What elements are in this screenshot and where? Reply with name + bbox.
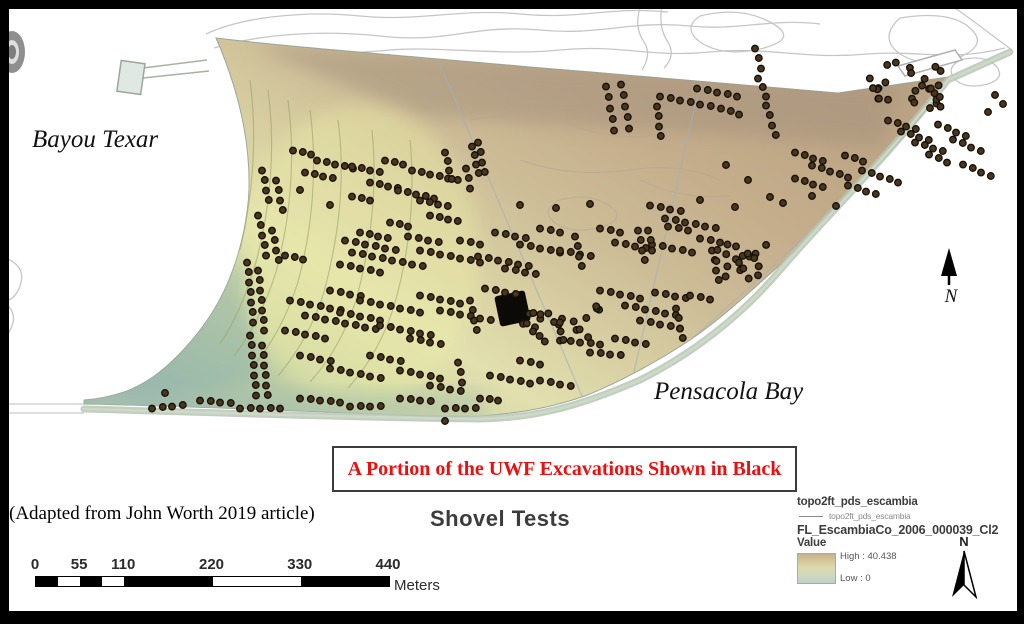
shovel-test-dot — [359, 165, 366, 172]
shovel-test-dot — [367, 231, 374, 238]
shovel-test-dot — [257, 405, 264, 412]
shovel-test-dot — [732, 204, 739, 211]
shovel-test-dot — [466, 175, 473, 182]
shovel-test-dot — [417, 309, 424, 316]
shovel-test-dot — [467, 297, 474, 304]
shovel-test-dot — [263, 372, 270, 379]
shovel-test-dot — [908, 131, 915, 138]
shovel-test-dot — [697, 235, 704, 242]
shovel-test-dot — [357, 229, 364, 236]
shovel-test-dot — [682, 219, 689, 226]
shovel-test-dot — [740, 265, 747, 272]
shovel-test-dot — [478, 149, 485, 156]
shovel-test-dot — [302, 331, 309, 338]
shovel-test-dot — [693, 221, 700, 228]
shovel-test-dot — [418, 337, 425, 344]
shovel-test-dot — [935, 121, 942, 128]
shovel-test-dot — [643, 341, 650, 348]
shovel-test-dot — [935, 82, 942, 89]
shovel-test-dot — [437, 173, 444, 180]
shovel-test-dot — [610, 116, 617, 123]
shovel-test-dot — [416, 235, 423, 242]
shovel-test-dot — [763, 93, 770, 100]
shovel-test-dot — [300, 149, 307, 156]
shovel-test-dot — [767, 112, 774, 119]
shovel-test-dot — [342, 237, 349, 244]
shovel-test-dot — [262, 177, 269, 184]
shovel-test-dot — [673, 217, 680, 224]
shovel-test-dot — [263, 187, 270, 194]
scale-unit-label: Meters — [394, 577, 440, 594]
shovel-test-dot — [884, 62, 891, 69]
shovel-test-dot — [290, 147, 297, 154]
shovel-test-dot — [668, 95, 675, 102]
shovel-test-dot — [417, 247, 424, 254]
shovel-test-dot — [545, 310, 552, 317]
shovel-test-dot — [377, 181, 384, 188]
shovel-test-dot — [438, 384, 445, 391]
shovel-test-dot — [724, 241, 731, 248]
shovel-test-dot — [728, 108, 735, 115]
shovel-test-dot — [745, 275, 752, 282]
scale-tick-label: 55 — [71, 556, 88, 573]
shovel-test-dot — [435, 201, 442, 208]
shovel-test-dot — [723, 251, 730, 258]
shovel-test-dot — [522, 269, 529, 276]
shovel-test-dot — [860, 158, 867, 165]
shovel-test-dot — [755, 263, 762, 270]
shovel-test-dot — [263, 252, 270, 259]
shovel-test-dot — [307, 301, 314, 308]
shovel-test-dot — [378, 354, 385, 361]
shovel-test-dot — [713, 267, 720, 274]
scale-tick-label: 220 — [199, 556, 224, 573]
shovel-test-dot — [950, 136, 957, 143]
shovel-test-dot — [338, 367, 345, 374]
shovel-test-dot — [718, 105, 725, 112]
shovel-test-dot — [579, 263, 586, 270]
shovel-test-dot — [714, 247, 721, 254]
shovel-test-dot — [467, 185, 474, 192]
shovel-test-dot — [253, 392, 260, 399]
shovel-test-dot — [548, 247, 555, 254]
shovel-test-dot — [678, 208, 685, 215]
shovel-test-dot — [313, 333, 320, 340]
shovel-test-dot — [680, 247, 687, 254]
shovel-test-dot — [869, 170, 876, 177]
shovel-test-dot — [919, 82, 926, 89]
shovel-test-dot — [662, 310, 669, 317]
shovel-test-dot — [300, 256, 307, 263]
shovel-test-dot — [648, 237, 655, 244]
shovel-test-dot — [428, 332, 435, 339]
shovel-test-dot — [855, 185, 862, 192]
shovel-test-dot — [708, 237, 715, 244]
shovel-test-dot — [527, 380, 534, 387]
shovel-test-dot — [912, 139, 919, 146]
shovel-test-dot — [342, 163, 349, 170]
shovel-test-dot — [446, 167, 453, 174]
shovel-test-dot — [474, 327, 481, 334]
shovel-test-dot — [548, 379, 555, 386]
shovel-test-dot — [479, 159, 486, 166]
shovel-test-dot — [258, 222, 265, 229]
shovel-test-dot — [312, 171, 319, 178]
shovel-test-dot — [169, 403, 176, 410]
shovel-test-dot — [228, 400, 235, 407]
shovel-test-dot — [513, 291, 520, 298]
shovel-test-dot — [262, 242, 269, 249]
shovel-test-dot — [537, 377, 544, 384]
shovel-test-dot — [475, 253, 482, 260]
shovel-test-dot — [255, 212, 262, 219]
shovel-test-dot — [658, 204, 665, 211]
shovel-test-dot — [645, 227, 652, 234]
shovel-test-dot — [537, 311, 544, 318]
shovel-test-dot — [332, 161, 339, 168]
shovel-test-dot — [736, 259, 743, 266]
shovel-test-dot — [705, 87, 712, 94]
shovel-test-dot — [537, 361, 544, 368]
shovel-test-dot — [427, 212, 434, 219]
shovel-test-dot — [773, 132, 780, 139]
shovel-test-dot — [385, 235, 392, 242]
shovel-test-dot — [375, 233, 382, 240]
shovel-test-dot — [388, 303, 395, 310]
shovel-test-dot — [277, 405, 284, 412]
shovel-test-dot — [654, 103, 661, 110]
shovel-test-dot — [607, 351, 614, 358]
shovel-test-dot — [898, 128, 905, 135]
shovel-test-dot — [637, 317, 644, 324]
legend-north-arrow-icon — [947, 549, 981, 599]
scale-bar-segment — [213, 577, 301, 586]
shovel-test-dot — [427, 382, 434, 389]
shovel-test-dot — [327, 287, 334, 294]
shovel-test-dot — [347, 291, 354, 298]
shovel-test-dot — [367, 179, 374, 186]
shovel-test-dot — [760, 84, 767, 91]
shovel-test-dot — [639, 247, 646, 254]
shovel-test-dot — [308, 151, 315, 158]
shovel-test-dot — [348, 311, 355, 318]
shovel-test-dot — [763, 242, 770, 249]
shovel-test-dot — [327, 365, 334, 372]
shovel-test-dot — [625, 114, 632, 121]
shovel-test-dot — [852, 155, 859, 162]
shovel-test-dot — [637, 295, 644, 302]
shovel-test-dot — [528, 243, 535, 250]
shovel-test-dot — [611, 127, 618, 134]
shovel-test-dot — [368, 315, 375, 322]
shovel-test-dot — [495, 397, 502, 404]
shovel-test-dot — [369, 253, 376, 260]
shovel-test-dot — [542, 338, 549, 345]
shovel-test-dot — [405, 189, 412, 196]
shovel-test-dot — [517, 202, 524, 209]
shovel-test-dot — [689, 249, 696, 256]
shovel-test-dot — [669, 245, 676, 252]
shovel-test-dot — [428, 249, 435, 256]
shovel-test-dot — [714, 89, 721, 96]
shovel-test-dot — [877, 173, 884, 180]
shovel-test-dot — [557, 229, 564, 236]
contour-line-swatch — [799, 516, 823, 517]
legend-value-entry: High : 40.438 Low : 0 — [797, 551, 1017, 584]
shovel-test-dot — [736, 111, 743, 118]
shovel-test-dot — [397, 326, 404, 333]
shovel-test-dot — [688, 99, 695, 106]
shovel-test-dot — [320, 173, 327, 180]
shovel-test-dot — [482, 285, 489, 292]
shovel-test-dot — [327, 202, 334, 209]
shovel-test-dot — [357, 297, 364, 304]
shovel-test-dot — [668, 323, 675, 330]
shovel-test-dot — [802, 178, 809, 185]
shovel-test-dot — [623, 241, 630, 248]
shovel-test-dot — [378, 375, 385, 382]
shovel-test-dot — [523, 235, 530, 242]
shovel-test-dot — [261, 317, 268, 324]
shovel-test-dot — [463, 165, 470, 172]
shovel-test-dot — [349, 249, 356, 256]
shovel-test-dot — [963, 133, 970, 140]
shovel-test-dot — [417, 371, 424, 378]
shovel-test-dot — [244, 259, 251, 266]
shovel-test-dot — [792, 175, 799, 182]
shovel-test-dot — [409, 261, 416, 268]
shovel-test-dot — [635, 227, 642, 234]
shovel-test-dot — [333, 318, 340, 325]
shovel-test-dot — [180, 402, 187, 409]
shovel-test-dot — [475, 139, 482, 146]
shovel-test-dot — [276, 187, 283, 194]
shovel-test-dot — [842, 152, 849, 159]
north-arrow-label-group: N — [933, 246, 969, 308]
shovel-test-dot — [477, 395, 484, 402]
shovel-test-dot — [723, 162, 730, 169]
shovel-test-dot — [327, 305, 334, 312]
shovel-test-dot — [257, 277, 264, 284]
scale-tick-label: 440 — [375, 556, 400, 573]
shovel-test-dot — [936, 155, 943, 162]
shovel-test-dot — [523, 320, 530, 327]
shovel-test-dot — [502, 265, 509, 272]
shovel-test-dot — [895, 120, 902, 127]
shovel-test-dot — [388, 324, 395, 331]
shovel-test-dot — [453, 405, 460, 412]
shovel-test-dot — [308, 396, 315, 403]
shovel-test-dot — [324, 159, 331, 166]
shovel-test-dot — [425, 237, 432, 244]
shovel-test-dot — [417, 330, 424, 337]
shovel-test-dot — [353, 239, 360, 246]
shovel-test-dot — [632, 243, 639, 250]
shovel-test-dot — [533, 271, 540, 278]
shovel-test-dot — [445, 216, 452, 223]
shovel-test-dot — [330, 175, 337, 182]
shovel-test-dot — [397, 305, 404, 312]
shovel-test-dot — [780, 200, 787, 207]
shovel-test-dot — [867, 75, 874, 82]
shovel-test-dot — [960, 140, 967, 147]
shovel-test-dot — [911, 99, 918, 106]
shovel-test-dot — [940, 148, 947, 155]
shovel-test-dot — [347, 369, 354, 376]
shovel-test-dot — [246, 269, 253, 276]
shovel-test-dot — [734, 93, 741, 100]
shovel-test-dot — [292, 254, 299, 261]
shovel-test-dot — [708, 103, 715, 110]
frame-border-right — [1017, 0, 1024, 624]
shovel-test-dot — [486, 255, 493, 262]
shovel-test-dot — [763, 102, 770, 109]
shovel-test-dot — [932, 64, 939, 71]
shovel-test-dot — [553, 205, 560, 212]
shovel-test-dot — [988, 173, 995, 180]
shovel-test-dot — [269, 227, 276, 234]
shovel-test-dot — [672, 293, 679, 300]
shovel-test-dot — [503, 231, 510, 238]
shovel-test-dot — [393, 247, 400, 254]
shovel-test-dot — [598, 350, 605, 357]
shovel-test-dot — [302, 169, 309, 176]
shovel-test-dot — [673, 305, 680, 312]
shovel-test-dot — [845, 182, 852, 189]
shovel-test-dot — [261, 352, 268, 359]
shovel-test-dot — [617, 291, 624, 298]
shovel-test-dot — [322, 335, 329, 342]
shovel-test-dot — [597, 225, 604, 232]
legend-north-letter: N — [947, 534, 981, 549]
scale-bar: 055110220330440 Meters — [35, 556, 455, 590]
shovel-test-dot — [367, 167, 374, 174]
shovel-test-dot — [716, 277, 723, 284]
shovel-test-dot — [259, 297, 266, 304]
shovel-test-dot — [506, 259, 513, 266]
shovel-test-dot — [367, 197, 374, 204]
scale-bar-segment — [80, 577, 102, 586]
shovel-test-dot — [560, 337, 567, 344]
shovel-test-dot — [442, 149, 449, 156]
shovel-test-dot — [758, 65, 765, 72]
shovel-test-dot — [455, 218, 462, 225]
shovel-test-dot — [277, 197, 284, 204]
shovel-test-dot — [820, 184, 827, 191]
shovel-test-dot — [358, 371, 365, 378]
shovel-test-dot — [397, 367, 404, 374]
shovel-test-dot — [248, 299, 255, 306]
shovel-test-dot — [657, 321, 664, 328]
shovel-test-dot — [328, 398, 335, 405]
shovel-test-dot — [587, 201, 594, 208]
shovel-test-dot — [576, 253, 583, 260]
scale-tick-labels: 055110220330440 — [35, 556, 455, 574]
shovel-test-dot — [272, 237, 279, 244]
shovel-test-dot — [597, 341, 604, 348]
shovel-test-dot — [927, 105, 934, 112]
shovel-test-dot — [680, 335, 687, 342]
shovel-test-dot — [337, 309, 344, 316]
shovel-test-dot — [445, 158, 452, 165]
scale-bar-segment — [36, 577, 58, 586]
shovel-test-dot — [261, 327, 268, 334]
legend-layer1-sub-label: topo2ft_pds_escambia — [829, 511, 911, 521]
shovel-test-dot — [337, 261, 344, 268]
shovel-test-dot — [471, 317, 478, 324]
shovel-test-dot — [960, 161, 967, 168]
scale-bar-segment — [102, 577, 124, 586]
shovel-test-dot — [317, 397, 324, 404]
shovel-test-dot — [953, 129, 960, 136]
shovel-test-dot — [349, 163, 356, 170]
shovel-test-dot — [377, 269, 384, 276]
shovel-test-dot — [488, 317, 495, 324]
shovel-test-dot — [445, 203, 452, 210]
shovel-test-dot — [428, 373, 435, 380]
shovel-test-dot — [893, 59, 900, 66]
shovel-test-dot — [618, 81, 625, 88]
shovel-test-dot — [908, 70, 915, 77]
shovel-test-dot — [423, 193, 430, 200]
shovel-test-dot — [707, 296, 714, 303]
shovel-test-dot — [985, 109, 992, 116]
shovel-test-dot — [810, 155, 817, 162]
shovel-test-dot — [297, 352, 304, 359]
shovel-test-dot — [266, 197, 273, 204]
water-label-bayou-texar: Bayou Texar — [32, 126, 158, 154]
shovel-test-dot — [297, 187, 304, 194]
shovel-test-dot — [568, 249, 575, 256]
shovel-test-dot — [408, 307, 415, 314]
shovel-test-dot — [572, 233, 579, 240]
shovel-test-dot — [937, 94, 944, 101]
legend: topo2ft_pds_escambia topo2ft_pds_escambi… — [797, 496, 1017, 606]
caption-box: A Portion of the UWF Excavations Shown i… — [332, 446, 797, 492]
shovel-test-dot — [427, 339, 434, 346]
shovel-test-dot — [470, 307, 477, 314]
shovel-test-dot — [576, 326, 583, 333]
shovel-test-dot — [656, 123, 663, 130]
scale-tick-label: 110 — [111, 556, 135, 573]
shovel-test-dot — [387, 356, 394, 363]
shovel-test-dot — [745, 177, 752, 184]
shovel-test-dot — [322, 316, 329, 323]
shovel-test-dot — [397, 221, 404, 228]
shovel-test-dot — [744, 250, 751, 257]
shovel-test-dot — [377, 301, 384, 308]
shovel-test-dot — [845, 174, 852, 181]
shovel-test-dot — [357, 313, 364, 320]
legend-high-label: High : 40.438 — [840, 551, 897, 562]
shovel-test-dot — [697, 101, 704, 108]
shovel-test-dot — [663, 291, 670, 298]
shovel-test-dot — [583, 315, 590, 322]
shovel-test-dot — [568, 338, 575, 345]
shovel-test-dot — [653, 308, 660, 315]
shovel-test-dot — [392, 159, 399, 166]
shovel-test-dot — [597, 287, 604, 294]
shovel-test-dot — [970, 165, 977, 172]
shovel-test-dot — [978, 169, 985, 176]
shovel-test-dot — [314, 157, 321, 164]
shovel-test-dot — [428, 398, 435, 405]
shovel-test-dot — [677, 97, 684, 104]
scale-tick-label: 330 — [287, 556, 312, 573]
shovel-test-dot — [419, 169, 426, 176]
shovel-test-dot — [387, 219, 394, 226]
shovel-test-dot — [819, 165, 826, 172]
